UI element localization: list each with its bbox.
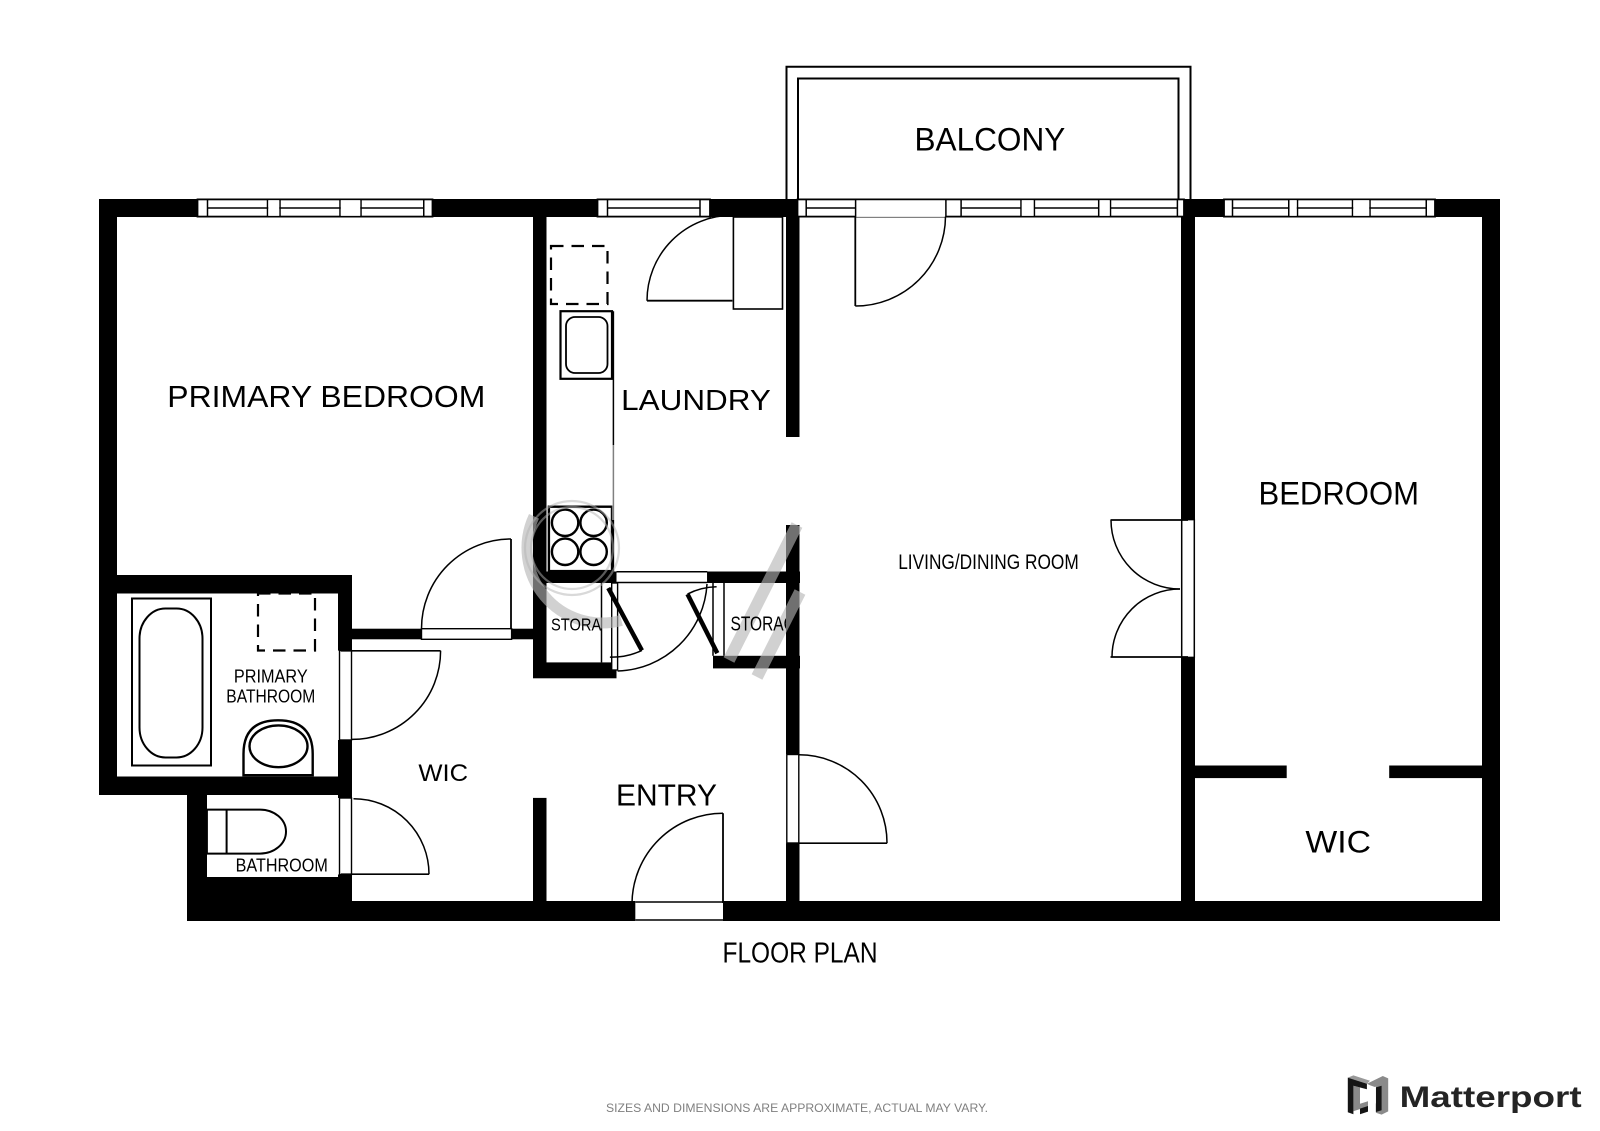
svg-text:ENTRY: ENTRY (616, 778, 717, 813)
svg-text:BATHROOM: BATHROOM (236, 855, 328, 876)
svg-text:Matterport: Matterport (1400, 1081, 1582, 1114)
svg-text:BATHROOM: BATHROOM (226, 686, 315, 707)
svg-text:FLOOR PLAN: FLOOR PLAN (723, 938, 878, 970)
svg-text:LAUNDRY: LAUNDRY (621, 385, 771, 417)
svg-text:LIVING/DINING ROOM: LIVING/DINING ROOM (898, 551, 1079, 574)
svg-text:BEDROOM: BEDROOM (1259, 476, 1420, 512)
svg-text:SIZES AND DIMENSIONS ARE APPRO: SIZES AND DIMENSIONS ARE APPROXIMATE, AC… (606, 1103, 988, 1115)
svg-text:PRIMARY: PRIMARY (234, 666, 308, 687)
svg-text:PRIMARY BEDROOM: PRIMARY BEDROOM (167, 379, 485, 414)
svg-text:WIC: WIC (418, 760, 468, 787)
svg-text:WIC: WIC (1305, 824, 1371, 860)
svg-text:BALCONY: BALCONY (915, 122, 1066, 158)
